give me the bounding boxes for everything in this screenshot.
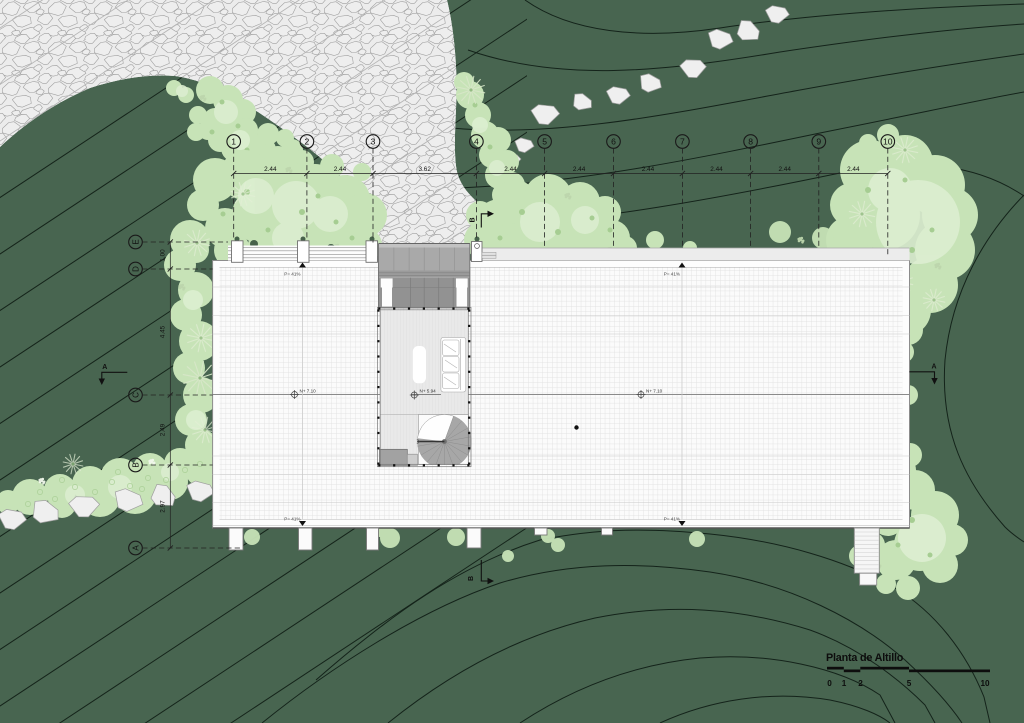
svg-text:N+ 5.94: N+ 5.94 (420, 389, 437, 394)
svg-text:N+ 7.10: N+ 7.10 (646, 388, 663, 393)
svg-text:P= 41%: P= 41% (664, 517, 680, 522)
svg-text:2.44: 2.44 (847, 166, 860, 173)
svg-text:6: 6 (611, 137, 616, 147)
svg-text:3: 3 (371, 137, 376, 147)
svg-text:N+ 7.10: N+ 7.10 (300, 388, 317, 393)
svg-text:2.44: 2.44 (264, 166, 277, 173)
svg-text:Planta de Altillo: Planta de Altillo (826, 652, 904, 664)
svg-text:8: 8 (748, 137, 753, 147)
svg-text:A: A (131, 545, 140, 551)
svg-text:2.97: 2.97 (160, 500, 167, 513)
svg-text:2.44: 2.44 (573, 166, 586, 173)
svg-text:3.62: 3.62 (418, 166, 431, 173)
svg-text:10: 10 (883, 137, 893, 147)
svg-text:P= 41%: P= 41% (284, 272, 300, 277)
svg-text:E: E (131, 239, 140, 244)
svg-text:2: 2 (305, 137, 310, 147)
svg-text:A: A (931, 364, 936, 371)
svg-text:2.44: 2.44 (710, 166, 723, 173)
svg-text:7: 7 (680, 137, 685, 147)
svg-text:5: 5 (907, 679, 912, 688)
svg-text:C: C (131, 392, 140, 398)
svg-text:A: A (102, 364, 107, 371)
svg-text:5: 5 (542, 137, 547, 147)
svg-text:1: 1 (231, 137, 236, 147)
svg-text:2.44: 2.44 (778, 166, 791, 173)
svg-text:10: 10 (980, 679, 990, 688)
svg-text:1.00: 1.00 (160, 249, 167, 262)
svg-text:0: 0 (827, 679, 832, 688)
svg-text:P= 41%: P= 41% (284, 517, 300, 522)
svg-text:4: 4 (474, 137, 479, 147)
svg-text:1: 1 (842, 679, 847, 688)
svg-text:P= 41%: P= 41% (664, 272, 680, 277)
svg-text:2.44: 2.44 (642, 166, 655, 173)
svg-text:4.45: 4.45 (160, 325, 167, 338)
svg-text:B: B (131, 462, 140, 467)
svg-text:B: B (468, 576, 475, 581)
svg-text:9: 9 (816, 137, 821, 147)
svg-text:2.44: 2.44 (504, 166, 517, 173)
svg-text:B: B (470, 217, 477, 222)
svg-text:2: 2 (858, 679, 863, 688)
svg-text:D: D (131, 266, 140, 272)
svg-text:2.44: 2.44 (334, 166, 347, 173)
svg-text:2.49: 2.49 (160, 423, 167, 436)
